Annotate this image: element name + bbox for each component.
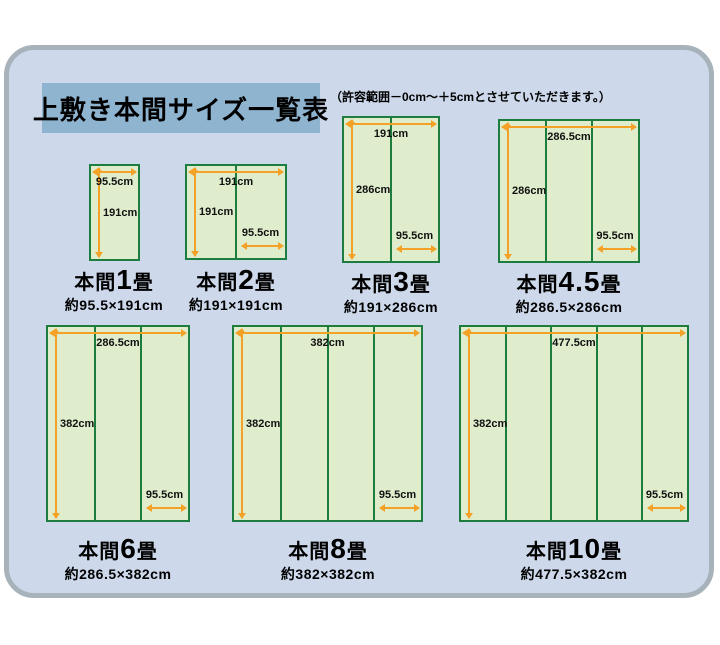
mat-size-label: 約286.5×286cm [516, 300, 623, 314]
mat-name-number: 10 [568, 533, 601, 564]
mat-name: 本間4.5畳 [516, 268, 623, 296]
width-label: 286.5cm [48, 338, 188, 349]
mat-unit-width-arrow [147, 507, 186, 509]
mat-column-divider [327, 327, 329, 520]
mat-name: 本間8畳 [281, 535, 375, 563]
mat-caption: 本間3畳約191×286cm [344, 268, 438, 314]
mat-unit-width-arrow [380, 507, 419, 509]
chart-title: 上敷き本間サイズ一覧表 [33, 90, 329, 127]
mat-name: 本間3畳 [344, 268, 438, 296]
height-label: 382cm [60, 419, 94, 430]
width-label: 191cm [187, 177, 285, 188]
mat-size-label: 約477.5×382cm [521, 567, 628, 581]
tolerance-note: （許容範囲－0cm～＋5cmとさせていただきます。） [330, 88, 611, 105]
height-label: 191cm [199, 207, 233, 218]
mat-unit-width-arrow [242, 245, 283, 247]
mat-name-prefix: 本間 [526, 541, 568, 563]
mat-size-label: 約191×191cm [189, 298, 283, 312]
height-label: 191cm [103, 208, 137, 219]
mat-caption: 本間8畳約382×382cm [281, 535, 375, 581]
height-label: 382cm [246, 419, 280, 430]
mat-name-suffix: 畳 [255, 272, 276, 294]
mat-unit-width-label: 95.5cm [391, 231, 438, 242]
mat-unit-width-label: 95.5cm [592, 231, 638, 242]
mat-unit-width-arrow [598, 248, 636, 250]
mat-column-divider [550, 327, 552, 520]
width-label: 95.5cm [91, 177, 138, 188]
height-label: 286cm [356, 185, 390, 196]
mat-unit-width-label: 95.5cm [236, 228, 285, 239]
mat-size-label: 約382×382cm [281, 567, 375, 581]
width-arrow [236, 332, 419, 334]
mat-name-suffix: 畳 [601, 541, 622, 563]
mat-name-suffix: 畳 [410, 274, 431, 296]
mat-name-number: 3 [393, 266, 410, 297]
mat-name: 本間10畳 [521, 535, 628, 563]
mat-size-label: 約191×286cm [344, 300, 438, 314]
mat-caption: 本間10畳約477.5×382cm [521, 535, 628, 581]
mat-name: 本間1畳 [65, 266, 164, 294]
height-arrow [468, 329, 470, 518]
mat-name-prefix: 本間 [196, 272, 238, 294]
mat-name-prefix: 本間 [351, 274, 393, 296]
mat-name: 本間6畳 [65, 535, 172, 563]
mat-name-prefix: 本間 [78, 541, 120, 563]
chart-title-box: 上敷き本間サイズ一覧表 [42, 83, 320, 133]
width-arrow [346, 123, 436, 125]
mat-diagram: 191cm191cm95.5cm [185, 164, 287, 260]
width-arrow [502, 126, 636, 128]
height-arrow [241, 329, 243, 518]
mat-name-number: 6 [120, 533, 137, 564]
mat-unit-width-arrow [397, 248, 436, 250]
mat-name: 本間2畳 [189, 266, 283, 294]
height-arrow [351, 120, 353, 259]
width-label: 382cm [234, 338, 421, 349]
mat-name-number: 1 [116, 264, 133, 295]
width-arrow [189, 171, 283, 173]
mat-name-suffix: 畳 [133, 272, 154, 294]
mat-caption: 本間4.5畳約286.5×286cm [516, 268, 623, 314]
width-label: 286.5cm [500, 132, 638, 143]
height-arrow [55, 329, 57, 518]
mat-unit-width-label: 95.5cm [642, 490, 687, 501]
width-label: 191cm [344, 129, 438, 140]
mat-name-prefix: 本間 [288, 541, 330, 563]
width-arrow [50, 332, 186, 334]
mat-caption: 本間6畳約286.5×382cm [65, 535, 172, 581]
mat-diagram: 382cm382cm95.5cm [232, 325, 423, 522]
mat-unit-width-label: 95.5cm [374, 490, 421, 501]
mat-size-label: 約286.5×382cm [65, 567, 172, 581]
mat-caption: 本間1畳約95.5×191cm [65, 266, 164, 312]
height-arrow [507, 123, 509, 259]
mat-name-number: 2 [238, 264, 255, 295]
mat-column-divider [280, 327, 282, 520]
mat-size-label: 約95.5×191cm [65, 298, 164, 312]
mat-name-prefix: 本間 [74, 272, 116, 294]
mat-caption: 本間2畳約191×191cm [189, 266, 283, 312]
mat-diagram: 191cm286cm95.5cm [342, 116, 440, 263]
height-label: 382cm [473, 419, 507, 430]
mat-column-divider [596, 327, 598, 520]
mat-name-suffix: 畳 [347, 541, 368, 563]
width-label: 477.5cm [461, 338, 687, 349]
mat-diagram: 95.5cm191cm [89, 164, 140, 261]
width-arrow [463, 332, 685, 334]
mat-unit-width-arrow [648, 507, 685, 509]
mat-diagram: 286.5cm286cm95.5cm [498, 119, 640, 263]
mat-name-suffix: 畳 [600, 274, 621, 296]
mat-name-number: 8 [330, 533, 347, 564]
mat-diagram: 477.5cm382cm95.5cm [459, 325, 689, 522]
mat-unit-width-label: 95.5cm [141, 490, 188, 501]
mat-diagram: 286.5cm382cm95.5cm [46, 325, 190, 522]
mat-column-divider [94, 327, 96, 520]
mat-name-suffix: 畳 [137, 541, 158, 563]
mat-name-number: 4.5 [559, 266, 601, 297]
mat-name-prefix: 本間 [517, 274, 559, 296]
height-label: 286cm [512, 186, 546, 197]
